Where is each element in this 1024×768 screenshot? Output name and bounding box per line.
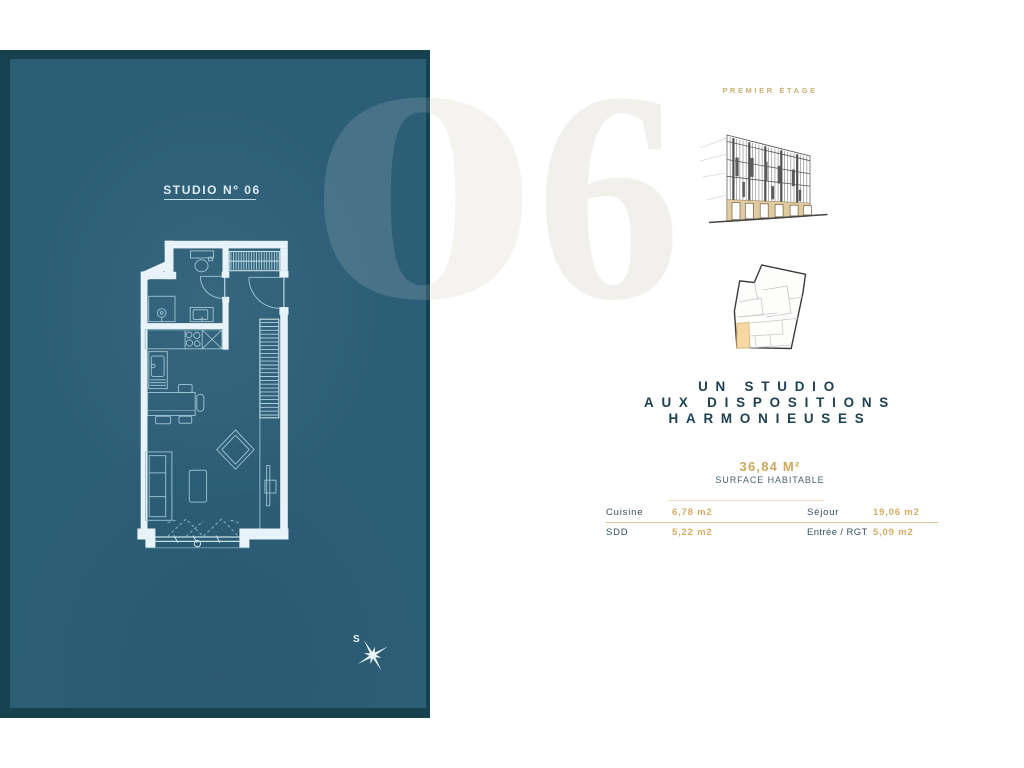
svg-text:S: S — [353, 634, 360, 645]
